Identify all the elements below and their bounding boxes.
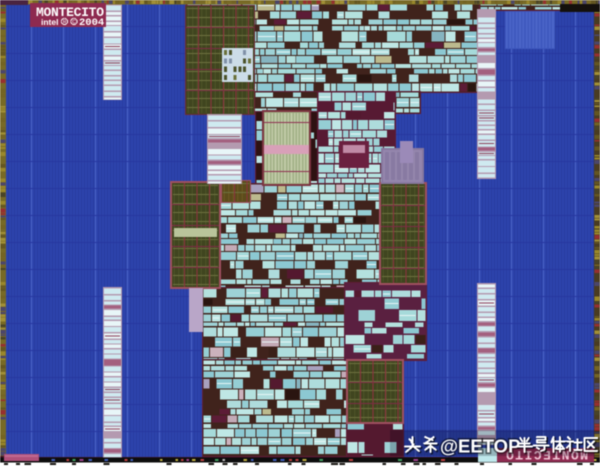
- svg-text:intel: intel: [41, 17, 58, 27]
- svg-text:@EETOP: @EETOP: [440, 436, 520, 457]
- svg-text:2004: 2004: [79, 17, 104, 29]
- svg-text:C: C: [72, 20, 76, 26]
- svg-text:R: R: [63, 20, 67, 26]
